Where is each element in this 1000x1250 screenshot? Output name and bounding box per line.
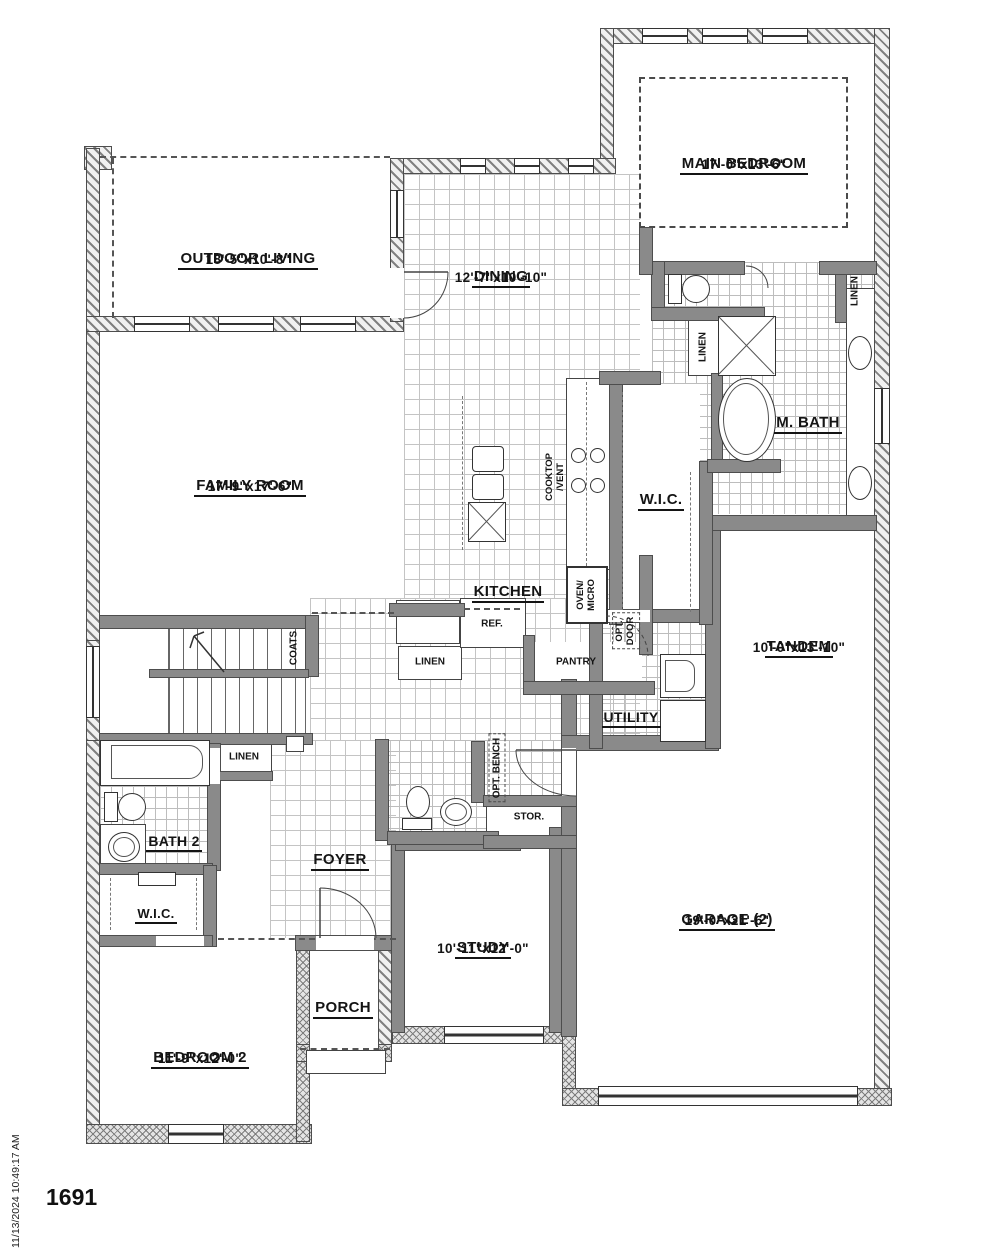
toilet-main-tank	[668, 274, 682, 304]
dishwasher	[468, 502, 506, 542]
kitchen-sink-2	[472, 474, 504, 500]
window-family-2	[218, 316, 274, 332]
door-gap-wic2	[156, 936, 204, 946]
toilet-powder-bowl	[406, 786, 430, 818]
label-ref: REF.	[481, 619, 503, 630]
burner-1	[571, 448, 586, 463]
wall-ref-left	[390, 604, 464, 616]
kitchen-sink-1	[472, 446, 504, 472]
label-opt-door: OPT. DOOR	[612, 613, 640, 650]
stair-arrow	[186, 626, 230, 676]
window-outdoor	[390, 190, 404, 238]
room-name: PORCH	[313, 999, 373, 1019]
room-dims: 17'-9"x17'-6"	[208, 479, 293, 494]
outdoor-open-edge-top	[100, 156, 390, 158]
door-arc-garage	[514, 746, 578, 798]
wall-utility-left	[590, 610, 602, 748]
garage-door	[598, 1086, 858, 1106]
kitchen-counter-right	[566, 378, 610, 570]
room-dims: 19'-0"x21'-6"	[685, 913, 770, 928]
wall-stor-bottom	[484, 836, 576, 848]
label-linen-shower: LINEN	[698, 332, 709, 362]
wall-right	[874, 28, 890, 1106]
floor-plan: MAIN BEDROOM 17'-0"x13'-6" OUTDOOR LIVIN…	[0, 0, 1000, 1250]
label-oven-micro: OVEN/ MICRO	[576, 579, 598, 611]
toilet-main-bowl	[682, 275, 710, 303]
wall-wic-left	[610, 372, 622, 624]
label-coats: COATS	[289, 631, 300, 665]
window-dining-1	[460, 158, 486, 174]
room-dims: 10'-11"x12'-0"	[437, 941, 529, 956]
counter-edge-dashed	[586, 382, 587, 566]
door-gap-dining	[390, 268, 404, 318]
sink-mbath-1	[848, 336, 872, 370]
stair-landing	[100, 628, 168, 734]
wic2-rod-left	[110, 878, 111, 930]
toilet-powder-tank	[402, 818, 432, 830]
room-name: FOYER	[311, 851, 368, 871]
window-mainbed-2	[702, 28, 748, 44]
plan-number: 1691	[46, 1184, 97, 1211]
burner-4	[590, 478, 605, 493]
wall-bed2-right	[296, 942, 310, 1142]
wall-hall-right	[640, 228, 652, 274]
window-mainbed-1	[642, 28, 688, 44]
bathtub-main	[718, 378, 776, 462]
burner-3	[571, 478, 586, 493]
window-family-3	[300, 316, 356, 332]
wall-wic-top	[600, 372, 660, 384]
wall-mainbed-bottom	[820, 262, 876, 274]
wall-coats-right	[306, 616, 318, 676]
timestamp: 11/13/2024 10:49:17 AM	[10, 1134, 22, 1248]
window-stairs	[86, 646, 100, 718]
door-arc-toilet-main	[744, 264, 770, 290]
wic-main-rod-right	[690, 472, 691, 612]
wall-wic-right	[700, 462, 712, 624]
room-name: KITCHEN	[472, 583, 545, 603]
sink-powder	[440, 798, 472, 826]
mainbed-ceiling-dashed	[639, 77, 848, 228]
wall-powder-bottom	[388, 832, 498, 844]
family-ceiling-dashed	[312, 612, 394, 614]
label-linen-bath2: LINEN	[229, 752, 259, 763]
wic-main-rod-left	[622, 392, 623, 612]
wall-wic2-right	[204, 866, 216, 946]
dryer	[660, 654, 706, 698]
label-linen-hall: LINEN	[415, 657, 445, 668]
wall-linen4-bottom	[218, 772, 272, 780]
stair-flight-lower	[168, 677, 306, 734]
window-mbath	[874, 388, 890, 444]
room-name: UTILITY	[602, 709, 661, 728]
room-name: BATH 2	[146, 833, 201, 852]
understair-door	[286, 736, 304, 752]
wall-garage-front-jog	[562, 1032, 576, 1094]
wall-mainbed-left	[600, 28, 614, 166]
ref-dashed	[464, 608, 520, 610]
burner-2	[590, 448, 605, 463]
wic2-shelf	[138, 872, 176, 886]
room-name: W.I.C.	[638, 491, 685, 511]
room-dims: 17'-0"x13'-6"	[702, 157, 787, 172]
wall-tandem-top	[712, 516, 876, 530]
room-name: M. BATH	[774, 414, 841, 434]
sink-mbath-2	[848, 466, 872, 500]
wic2-rod-right	[196, 878, 197, 930]
outdoor-open-edge-left	[112, 158, 114, 318]
porch-step	[306, 1050, 386, 1074]
window-dining-3	[568, 158, 594, 174]
toilet-bath2-tank	[104, 792, 118, 822]
label-pantry: PANTRY	[556, 657, 596, 668]
label-linen-mainhall: LINEN	[850, 276, 861, 306]
window-family-1	[134, 316, 190, 332]
toilet-bath2-bowl	[118, 793, 146, 821]
wall-toilet-top	[652, 262, 744, 274]
wall-garage-left	[562, 680, 576, 1036]
shower-main	[718, 316, 776, 376]
wall-porch-right	[378, 942, 392, 1052]
door-arc-front	[316, 886, 378, 940]
wall-study-left	[392, 836, 404, 1032]
room-dims: 12'-7"x10'-10"	[455, 270, 547, 285]
washer	[660, 700, 706, 742]
wall-powder-right	[472, 742, 484, 802]
window-dining-2	[514, 158, 540, 174]
door-arc-dining	[404, 270, 452, 320]
window-mainbed-3	[762, 28, 808, 44]
bathtub-bath2	[100, 740, 210, 786]
room-dims: 11'-9"x12'-0"	[158, 1051, 242, 1066]
wall-left-lower	[86, 740, 100, 1142]
wall-family-left	[86, 316, 100, 642]
label-cooktop-vent: COOKTOP /VENT	[545, 453, 567, 501]
room-dims: 18'-5"x10'-8"	[206, 252, 291, 267]
room-dims: 10'-0"x13'-10"	[753, 640, 845, 655]
window-study	[444, 1026, 544, 1044]
room-name: W.I.C.	[135, 906, 176, 924]
wall-powder-left	[376, 740, 388, 840]
label-stor: STOR.	[514, 812, 544, 823]
window-bed2	[168, 1124, 224, 1144]
island-edge-dashed	[462, 396, 463, 550]
wall-outdoor-left	[86, 148, 100, 322]
wall-pantry-bottom	[524, 682, 654, 694]
label-opt-bench: OPT. BENCH	[492, 734, 503, 803]
sink-bath2	[108, 832, 140, 862]
